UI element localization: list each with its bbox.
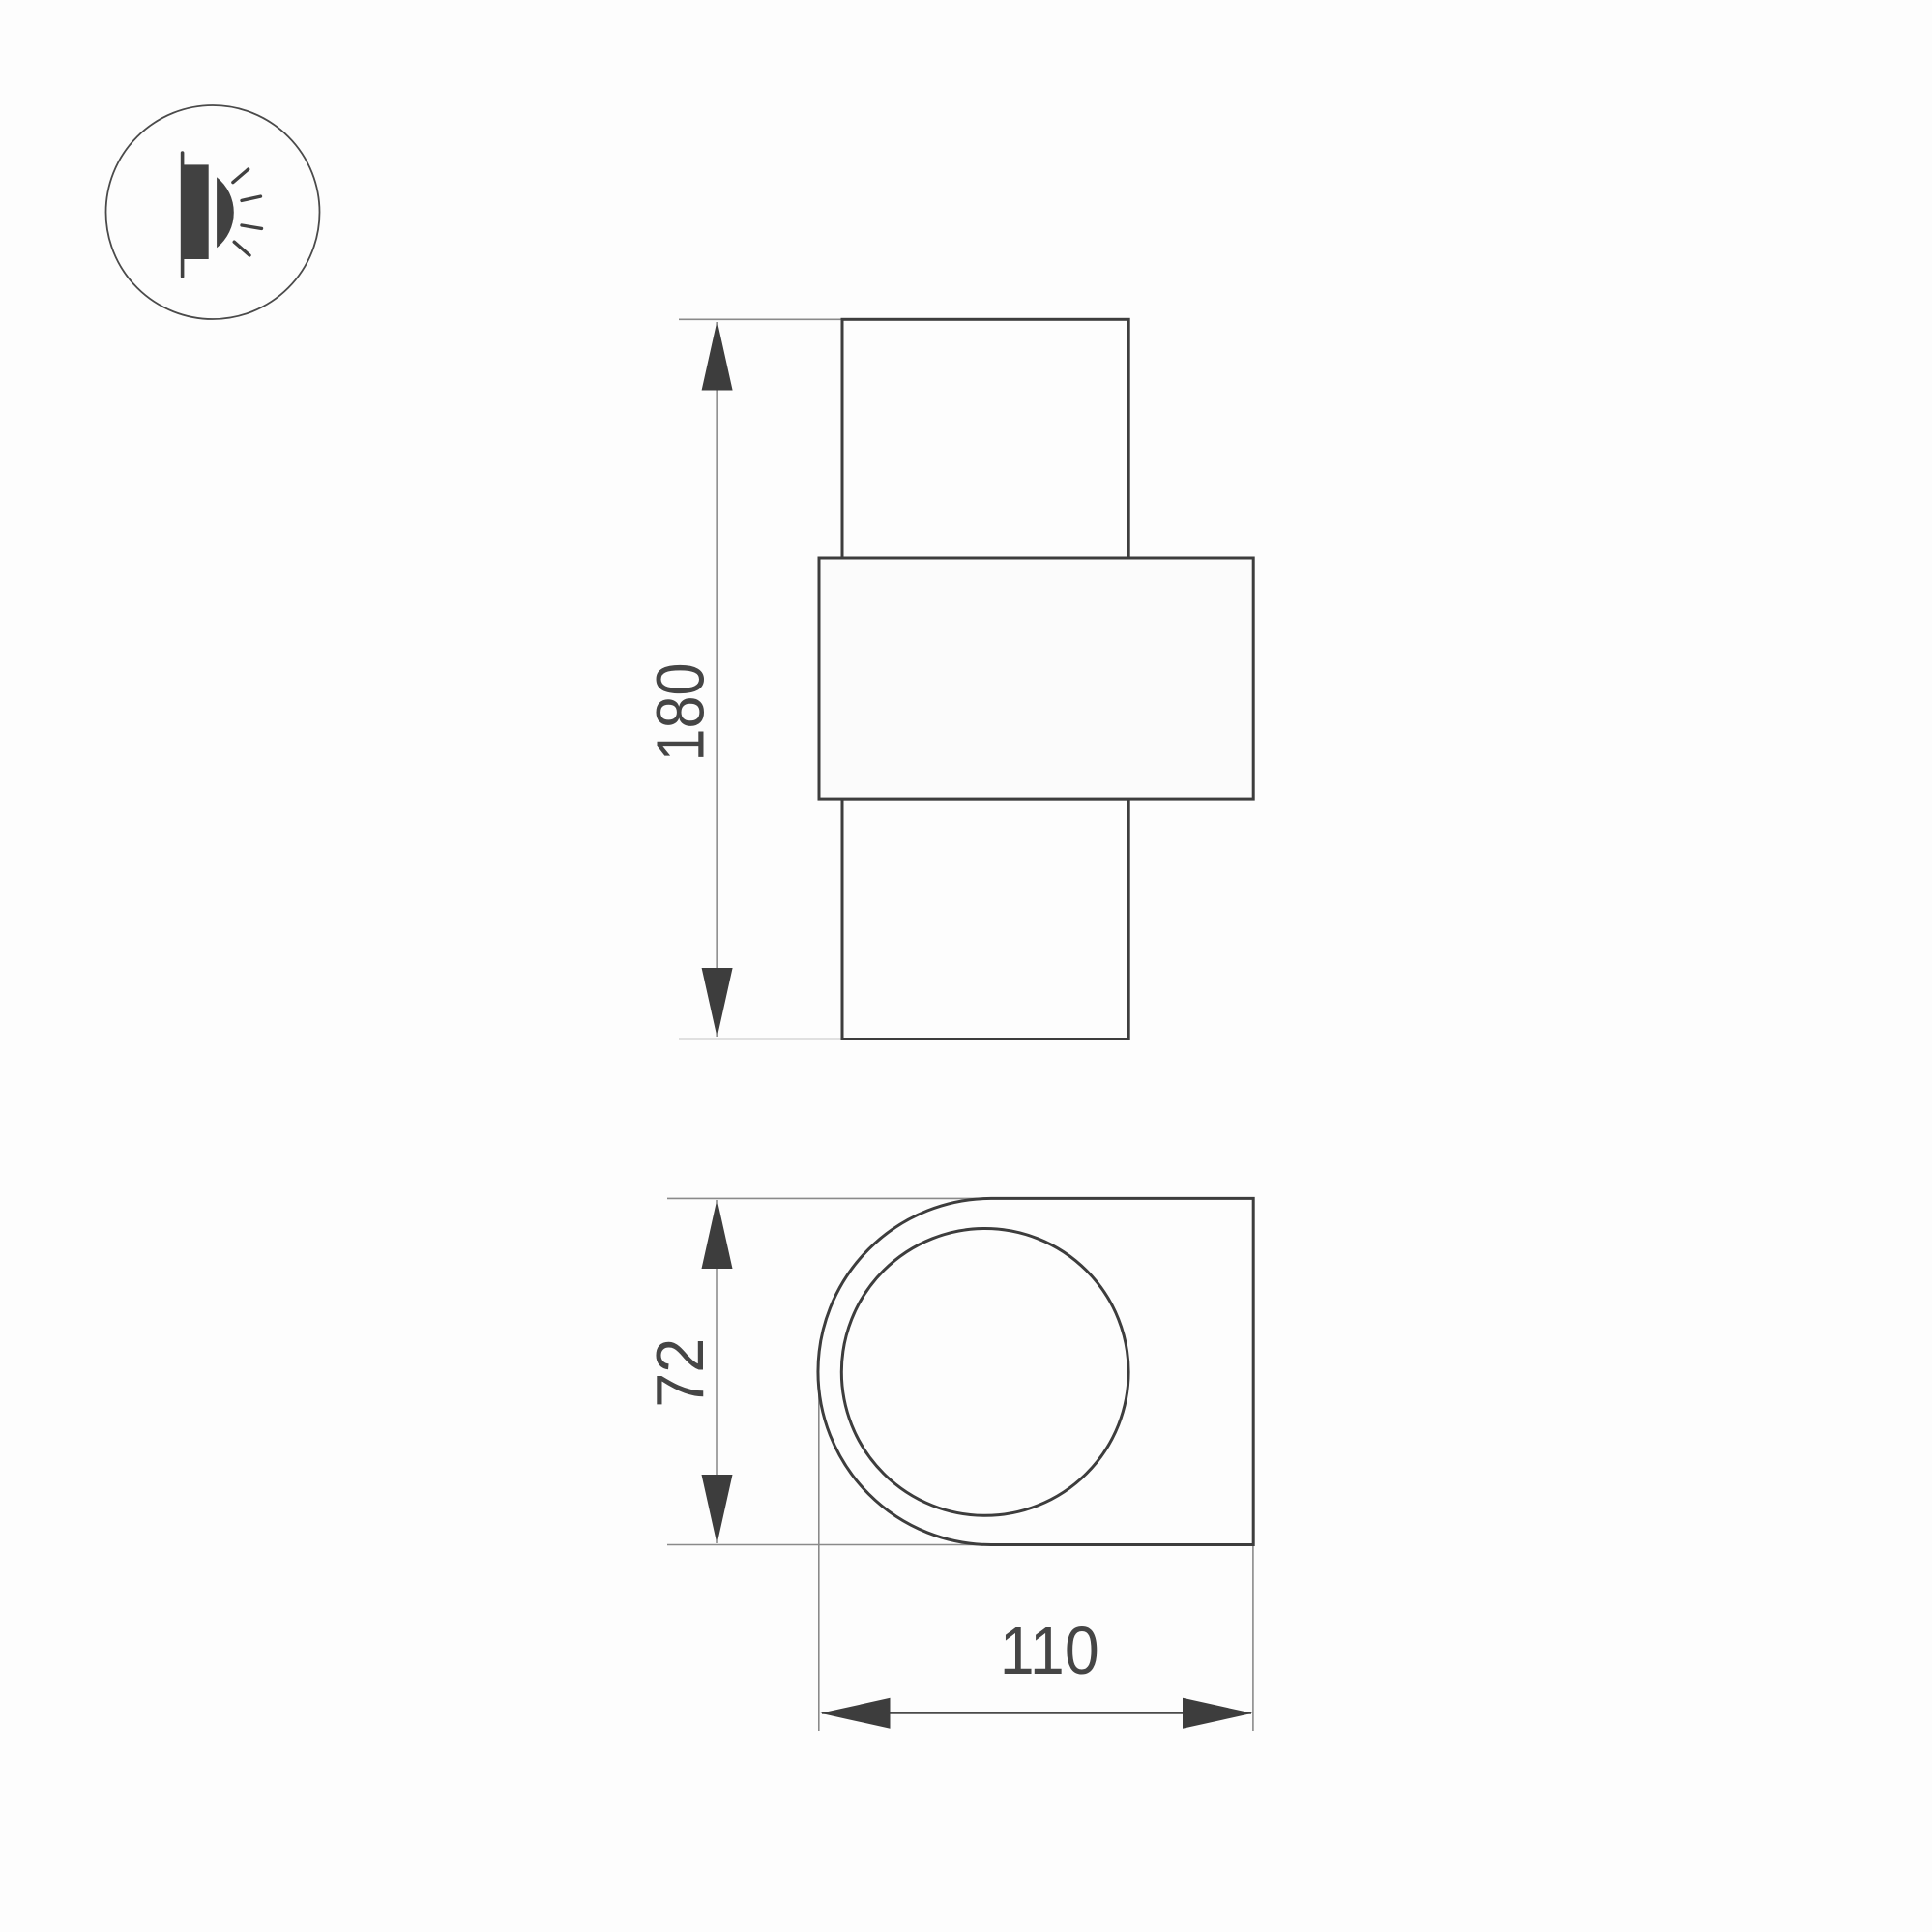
- svg-text:110: 110: [1000, 1613, 1099, 1688]
- svg-text:180: 180: [642, 663, 717, 762]
- svg-text:72: 72: [642, 1338, 717, 1408]
